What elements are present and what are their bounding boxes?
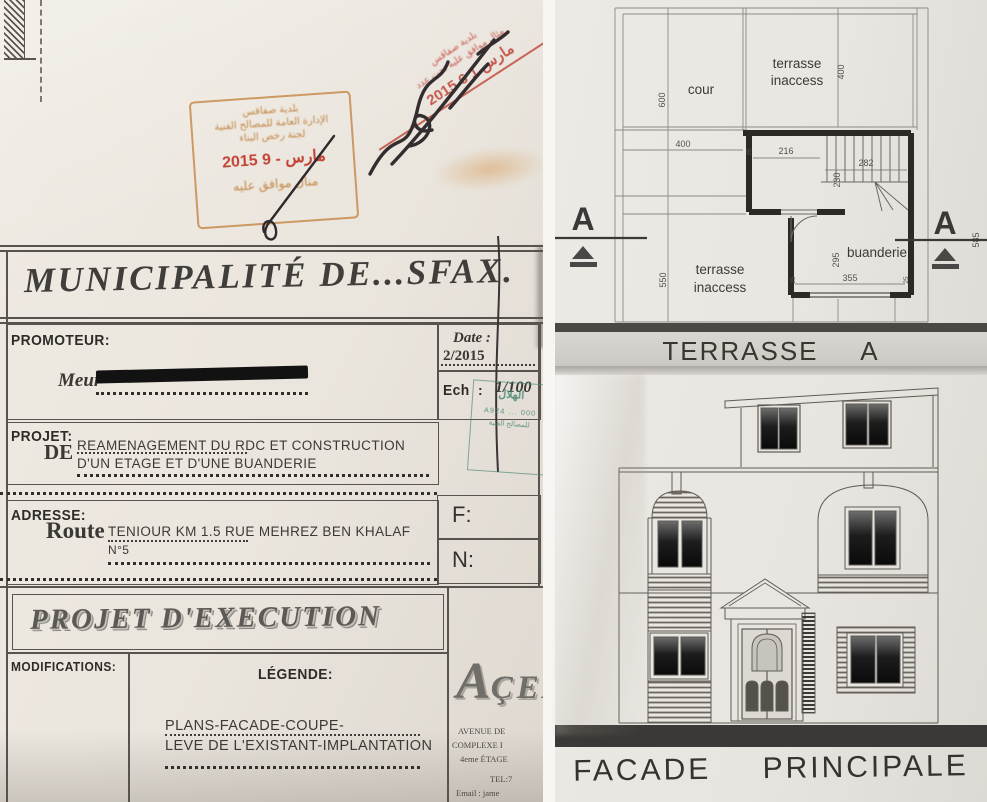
dim-295: 295 bbox=[831, 252, 841, 267]
facade-top-floor bbox=[725, 388, 938, 467]
dotted-fill bbox=[0, 492, 437, 495]
divider bbox=[6, 652, 447, 654]
dim-25: 25 bbox=[746, 148, 753, 156]
section-marker-left: A bbox=[555, 201, 647, 267]
dotted-fill bbox=[108, 540, 248, 542]
projet-line2: D'UN ETAGE ET D'UNE BUANDERIE bbox=[77, 456, 317, 471]
firm-address-line: COMPLEXE I bbox=[452, 740, 503, 750]
page-title: MUNICIPALITÉ DE...SFAX. bbox=[24, 251, 515, 301]
dotted-fill bbox=[0, 578, 437, 581]
modifications-label: MODIFICATIONS: bbox=[11, 659, 116, 674]
dim-550: 550 bbox=[658, 272, 668, 287]
dim-400h: 400 bbox=[675, 139, 690, 149]
room-label-terrasse: terrasse bbox=[773, 56, 822, 71]
room-label-terrasse: terrasse bbox=[696, 262, 745, 277]
plan-window-symbol bbox=[810, 291, 890, 299]
dim-25: 25 bbox=[903, 276, 910, 284]
promoteur-label: PROMOTEUR: bbox=[11, 332, 110, 349]
dotted-fill bbox=[77, 474, 429, 477]
terrasse-title-band: TERRASSE A CONSTRUIRE bbox=[555, 332, 987, 366]
ech-label: Ech bbox=[443, 382, 470, 399]
adresse-line2: N°5 bbox=[108, 543, 129, 557]
divider bbox=[0, 317, 543, 319]
dim-600: 600 bbox=[657, 92, 667, 107]
pen-check-mark bbox=[238, 128, 348, 253]
form-border bbox=[447, 587, 449, 802]
paper-crease bbox=[555, 375, 645, 735]
terrace-plan-drawing: cour terrasse inaccess terrasse inaccess… bbox=[555, 0, 987, 323]
facade-ground-floor bbox=[619, 579, 938, 723]
architect-green-stamp: الهلال A924 ... 000 للمصالح الفنية bbox=[467, 379, 543, 475]
adresse-route: Route bbox=[46, 518, 105, 544]
meur-label: Meur bbox=[58, 370, 101, 392]
firm-logo: AÇEA bbox=[456, 652, 543, 711]
legende-label: LÉGENDE: bbox=[258, 666, 333, 683]
dotted-fill bbox=[108, 562, 430, 565]
facade-title: FACADE PRINCIPALE bbox=[555, 749, 987, 789]
dotted-fill bbox=[96, 392, 308, 395]
form-border bbox=[128, 652, 130, 802]
plan-dimensions: 600 400 400 216 282 230 295 355 550 585 … bbox=[657, 64, 981, 287]
dotted-fill bbox=[165, 766, 420, 769]
plan-labels: cour terrasse inaccess terrasse inaccess… bbox=[688, 56, 907, 295]
terrace-plan-photo: cour terrasse inaccess terrasse inaccess… bbox=[555, 0, 987, 323]
photo-shadow bbox=[555, 366, 987, 375]
legende-line2: LEVE DE L'EXISTANT-IMPLANTATION bbox=[165, 738, 432, 754]
dim-230: 230 bbox=[832, 172, 842, 187]
scanned-building-permit: بلدية صفاقس الإدارة العامة للمصالح الفني… bbox=[0, 0, 987, 802]
margin-dashed-line bbox=[40, 0, 42, 102]
execution-banner: PROJET D'EXECUTION bbox=[30, 600, 381, 637]
dim-25: 25 bbox=[790, 276, 797, 284]
firm-phone: TEL:7 bbox=[490, 774, 512, 784]
stamp-number: A924 ... 000 bbox=[472, 404, 543, 418]
divider bbox=[0, 245, 543, 247]
firm-address-line: 4eme ÉTAGE bbox=[460, 754, 508, 764]
photo-gap bbox=[543, 0, 555, 802]
corner-hatch-mark bbox=[4, 0, 25, 58]
photo-edge-bar bbox=[555, 323, 987, 332]
firm-logo-initial: A bbox=[456, 653, 491, 710]
dim-216: 216 bbox=[778, 146, 793, 156]
dim-400v: 400 bbox=[836, 64, 846, 79]
plan-door-swing bbox=[781, 210, 817, 242]
firm-email: Email : jame bbox=[456, 788, 499, 798]
stamp-text: للمصالح الفنية bbox=[471, 417, 543, 430]
stamp-text: الهلال bbox=[473, 385, 543, 403]
projet-de: DE bbox=[44, 440, 73, 465]
room-label-terrasse: inaccess bbox=[694, 280, 747, 295]
firm-address-line: AVENUE DE bbox=[458, 726, 505, 736]
title-block-page: بلدية صفاقس الإدارة العامة للمصالح الفني… bbox=[0, 0, 543, 802]
firm-logo-rest: ÇEA bbox=[491, 670, 543, 706]
room-label-cour: cour bbox=[688, 82, 715, 97]
section-letter: A bbox=[933, 205, 956, 241]
section-letter: A bbox=[571, 201, 594, 237]
room-label-terrasse: inaccess bbox=[771, 73, 824, 88]
dotted-fill bbox=[77, 452, 247, 454]
f-label: F: bbox=[452, 502, 472, 528]
corner-hatch-foot bbox=[4, 58, 36, 60]
room-label-buanderie: buanderie bbox=[847, 245, 907, 260]
divider bbox=[0, 586, 543, 588]
projet-line1: REAMENAGEMENT DU RDC ET CONSTRUCTION bbox=[77, 438, 405, 453]
adresse-line1: TENIOUR KM 1.5 RUE MEHREZ BEN KHALAF bbox=[108, 524, 410, 539]
dotted-fill bbox=[165, 734, 420, 736]
dim-282: 282 bbox=[858, 158, 873, 168]
legende-line1: PLANS-FACADE-COUPE- bbox=[165, 718, 344, 734]
n-label: N: bbox=[452, 547, 474, 573]
dim-355: 355 bbox=[842, 273, 857, 283]
